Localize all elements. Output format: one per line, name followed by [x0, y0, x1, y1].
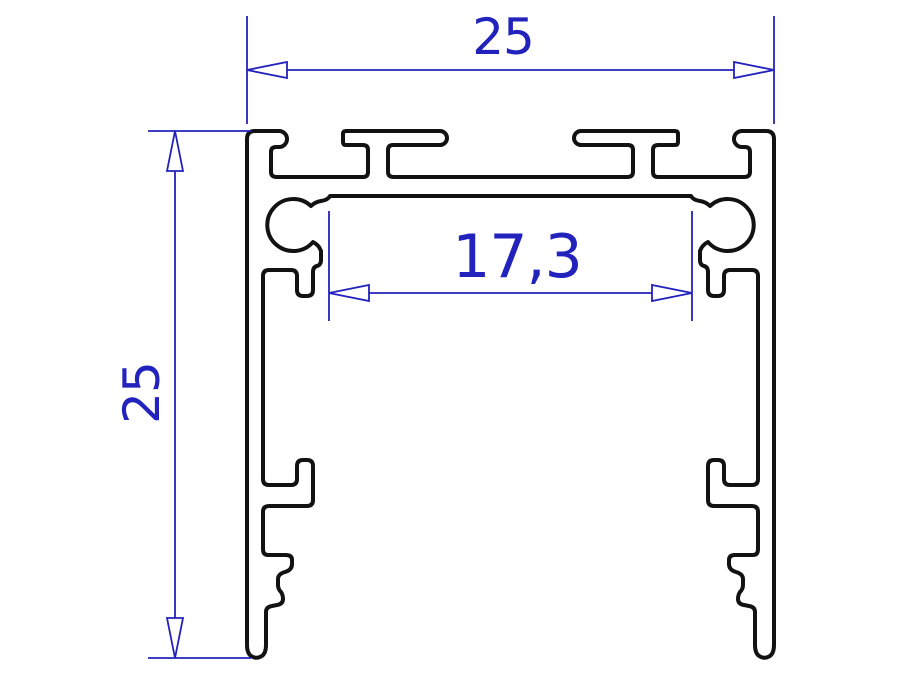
arrowhead-left-icon — [329, 285, 369, 301]
profile-cross-section-drawing: 25 17,3 25 — [0, 0, 900, 675]
arrowhead-right-icon — [652, 285, 692, 301]
profile-outline-right-half — [511, 131, 775, 658]
arrowhead-bottom-icon — [167, 618, 183, 658]
profile-outline-left-half — [247, 131, 511, 658]
technical-drawing-page: 25 17,3 25 — [0, 0, 900, 675]
arrowhead-left-icon — [247, 62, 287, 78]
arrowhead-right-icon — [734, 62, 774, 78]
dim-inner-width-label: 17,3 — [452, 222, 582, 292]
profile-outline — [247, 131, 774, 658]
dim-overall-width-label: 25 — [472, 8, 534, 66]
arrowhead-top-icon — [167, 131, 183, 171]
dim-overall-height-label: 25 — [113, 362, 171, 424]
